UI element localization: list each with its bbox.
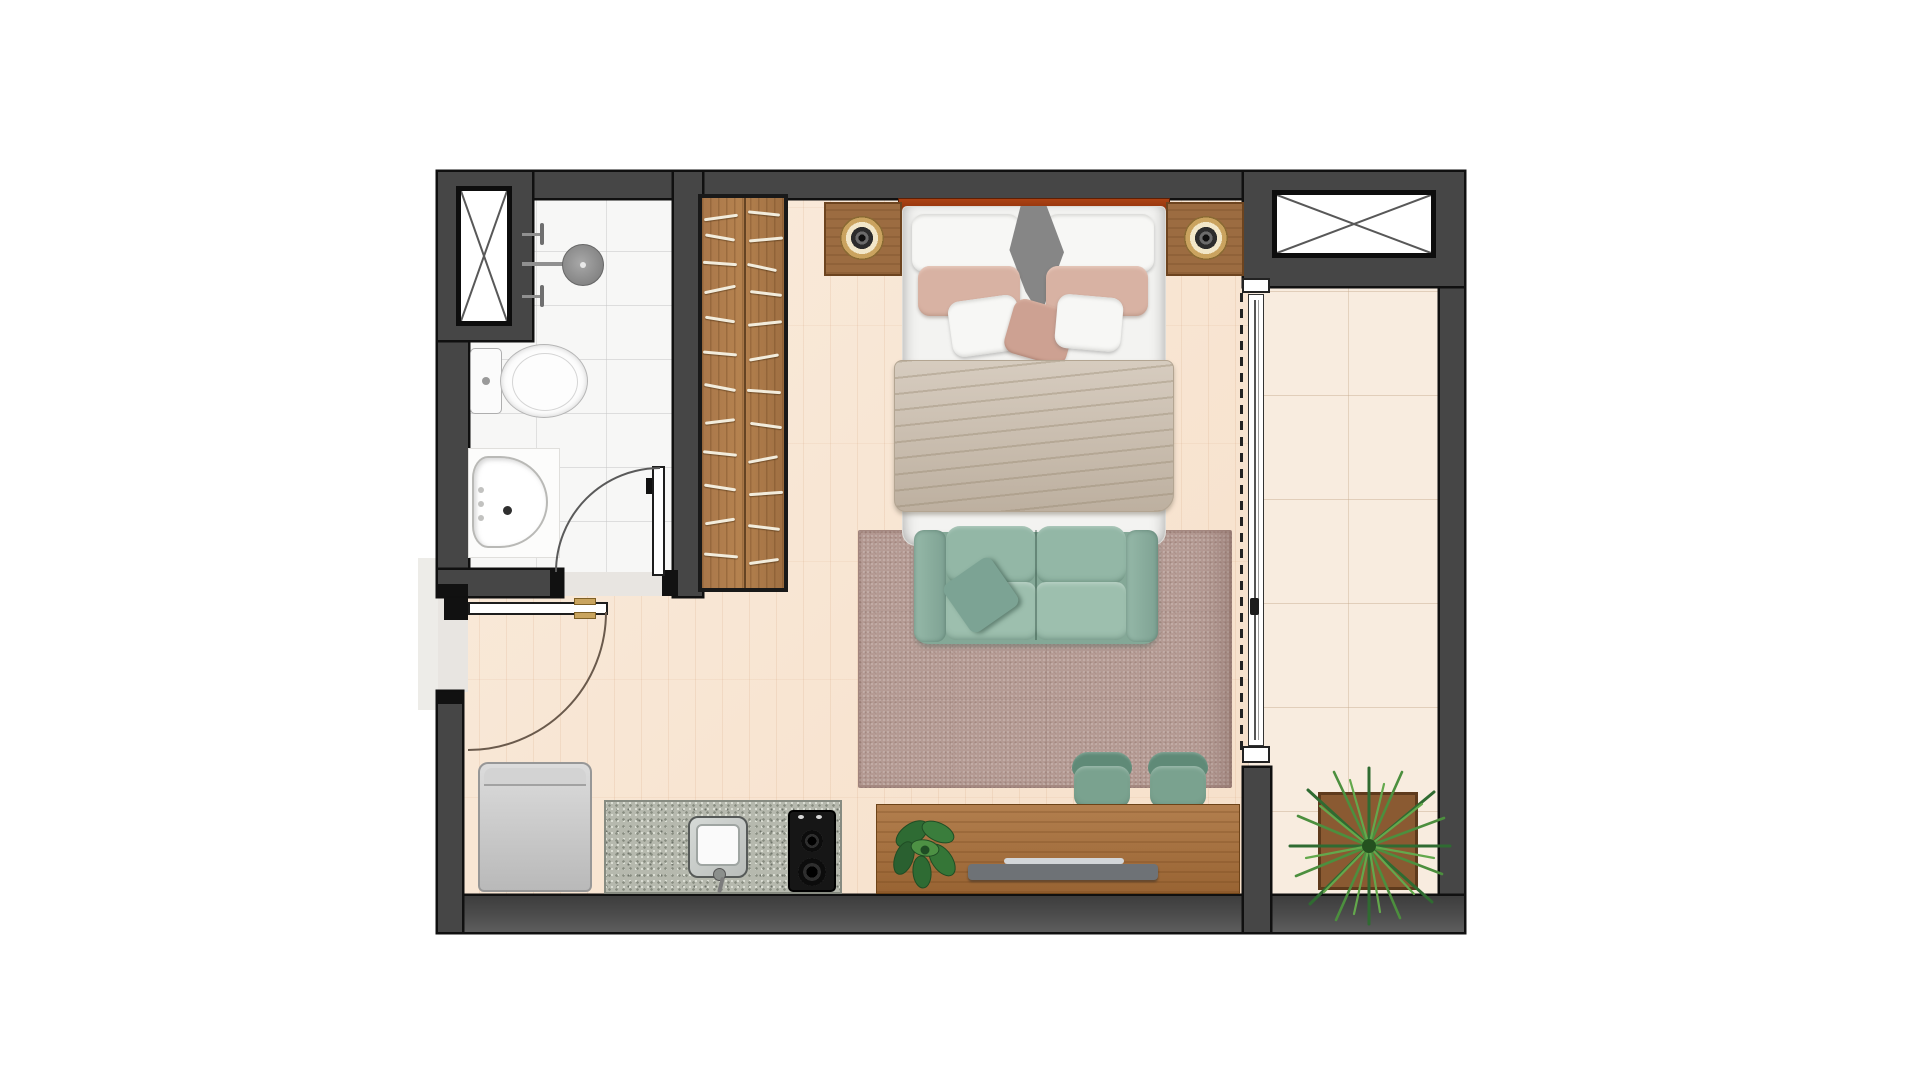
bathroom-door-arc <box>550 460 670 582</box>
slider-dash-line <box>1240 293 1243 751</box>
chair-seat <box>1074 766 1130 808</box>
pillow-small <box>1054 293 1124 353</box>
basin-tap <box>478 515 484 521</box>
wall-cap <box>438 584 468 596</box>
cooktop-knob <box>816 815 822 819</box>
balcony-plant <box>1284 762 1454 930</box>
shower-head-nozzle <box>580 262 586 268</box>
slider-glass-line <box>1254 300 1256 740</box>
sofa-arm-right <box>1126 530 1158 642</box>
slider-glass-line <box>1258 300 1259 740</box>
pillow <box>912 214 1020 272</box>
wall-left-lower <box>438 692 462 932</box>
bed-blanket <box>894 360 1174 512</box>
entry-landing <box>418 558 438 710</box>
toilet-button <box>482 377 490 385</box>
tv <box>968 864 1158 880</box>
pillow <box>1046 214 1154 272</box>
refrigerator <box>478 762 592 892</box>
shaft-box-balcony <box>1272 190 1436 258</box>
basin-tap <box>478 487 484 493</box>
toilet-seat-line <box>512 353 578 411</box>
shower-valve-stem <box>522 295 542 298</box>
shower-valve-stem <box>522 233 542 236</box>
basin-tap <box>478 501 484 507</box>
sofa-seat-cushion <box>1036 582 1126 640</box>
sliding-glass-door <box>1248 294 1264 746</box>
sofa-seam <box>1035 530 1037 640</box>
entry-door-arc <box>460 600 620 760</box>
shaft-box-bathroom <box>456 186 512 326</box>
cooktop-knob <box>798 815 804 819</box>
slider-jamb-bottom <box>1242 746 1270 763</box>
slider-jamb-top <box>1242 278 1270 293</box>
floor-plan-canvas <box>0 0 1920 1080</box>
sofa-arm-left <box>914 530 946 642</box>
burner-icon <box>801 830 823 852</box>
wall-slider-pier <box>1244 768 1270 932</box>
slider-handle <box>1250 598 1259 615</box>
kitchen-sink-basin <box>696 824 740 866</box>
shower-valve-handle <box>540 285 544 307</box>
burner-icon <box>798 858 826 886</box>
sofa-back-cushion <box>1036 526 1126 584</box>
bedside-lamp-icon <box>1184 216 1228 260</box>
wall-cap <box>438 692 462 704</box>
console-plant <box>882 806 968 894</box>
bedside-lamp-icon <box>840 216 884 260</box>
chair-seat <box>1150 766 1206 808</box>
shower-valve-handle <box>540 223 544 245</box>
basin-drain <box>503 506 512 515</box>
